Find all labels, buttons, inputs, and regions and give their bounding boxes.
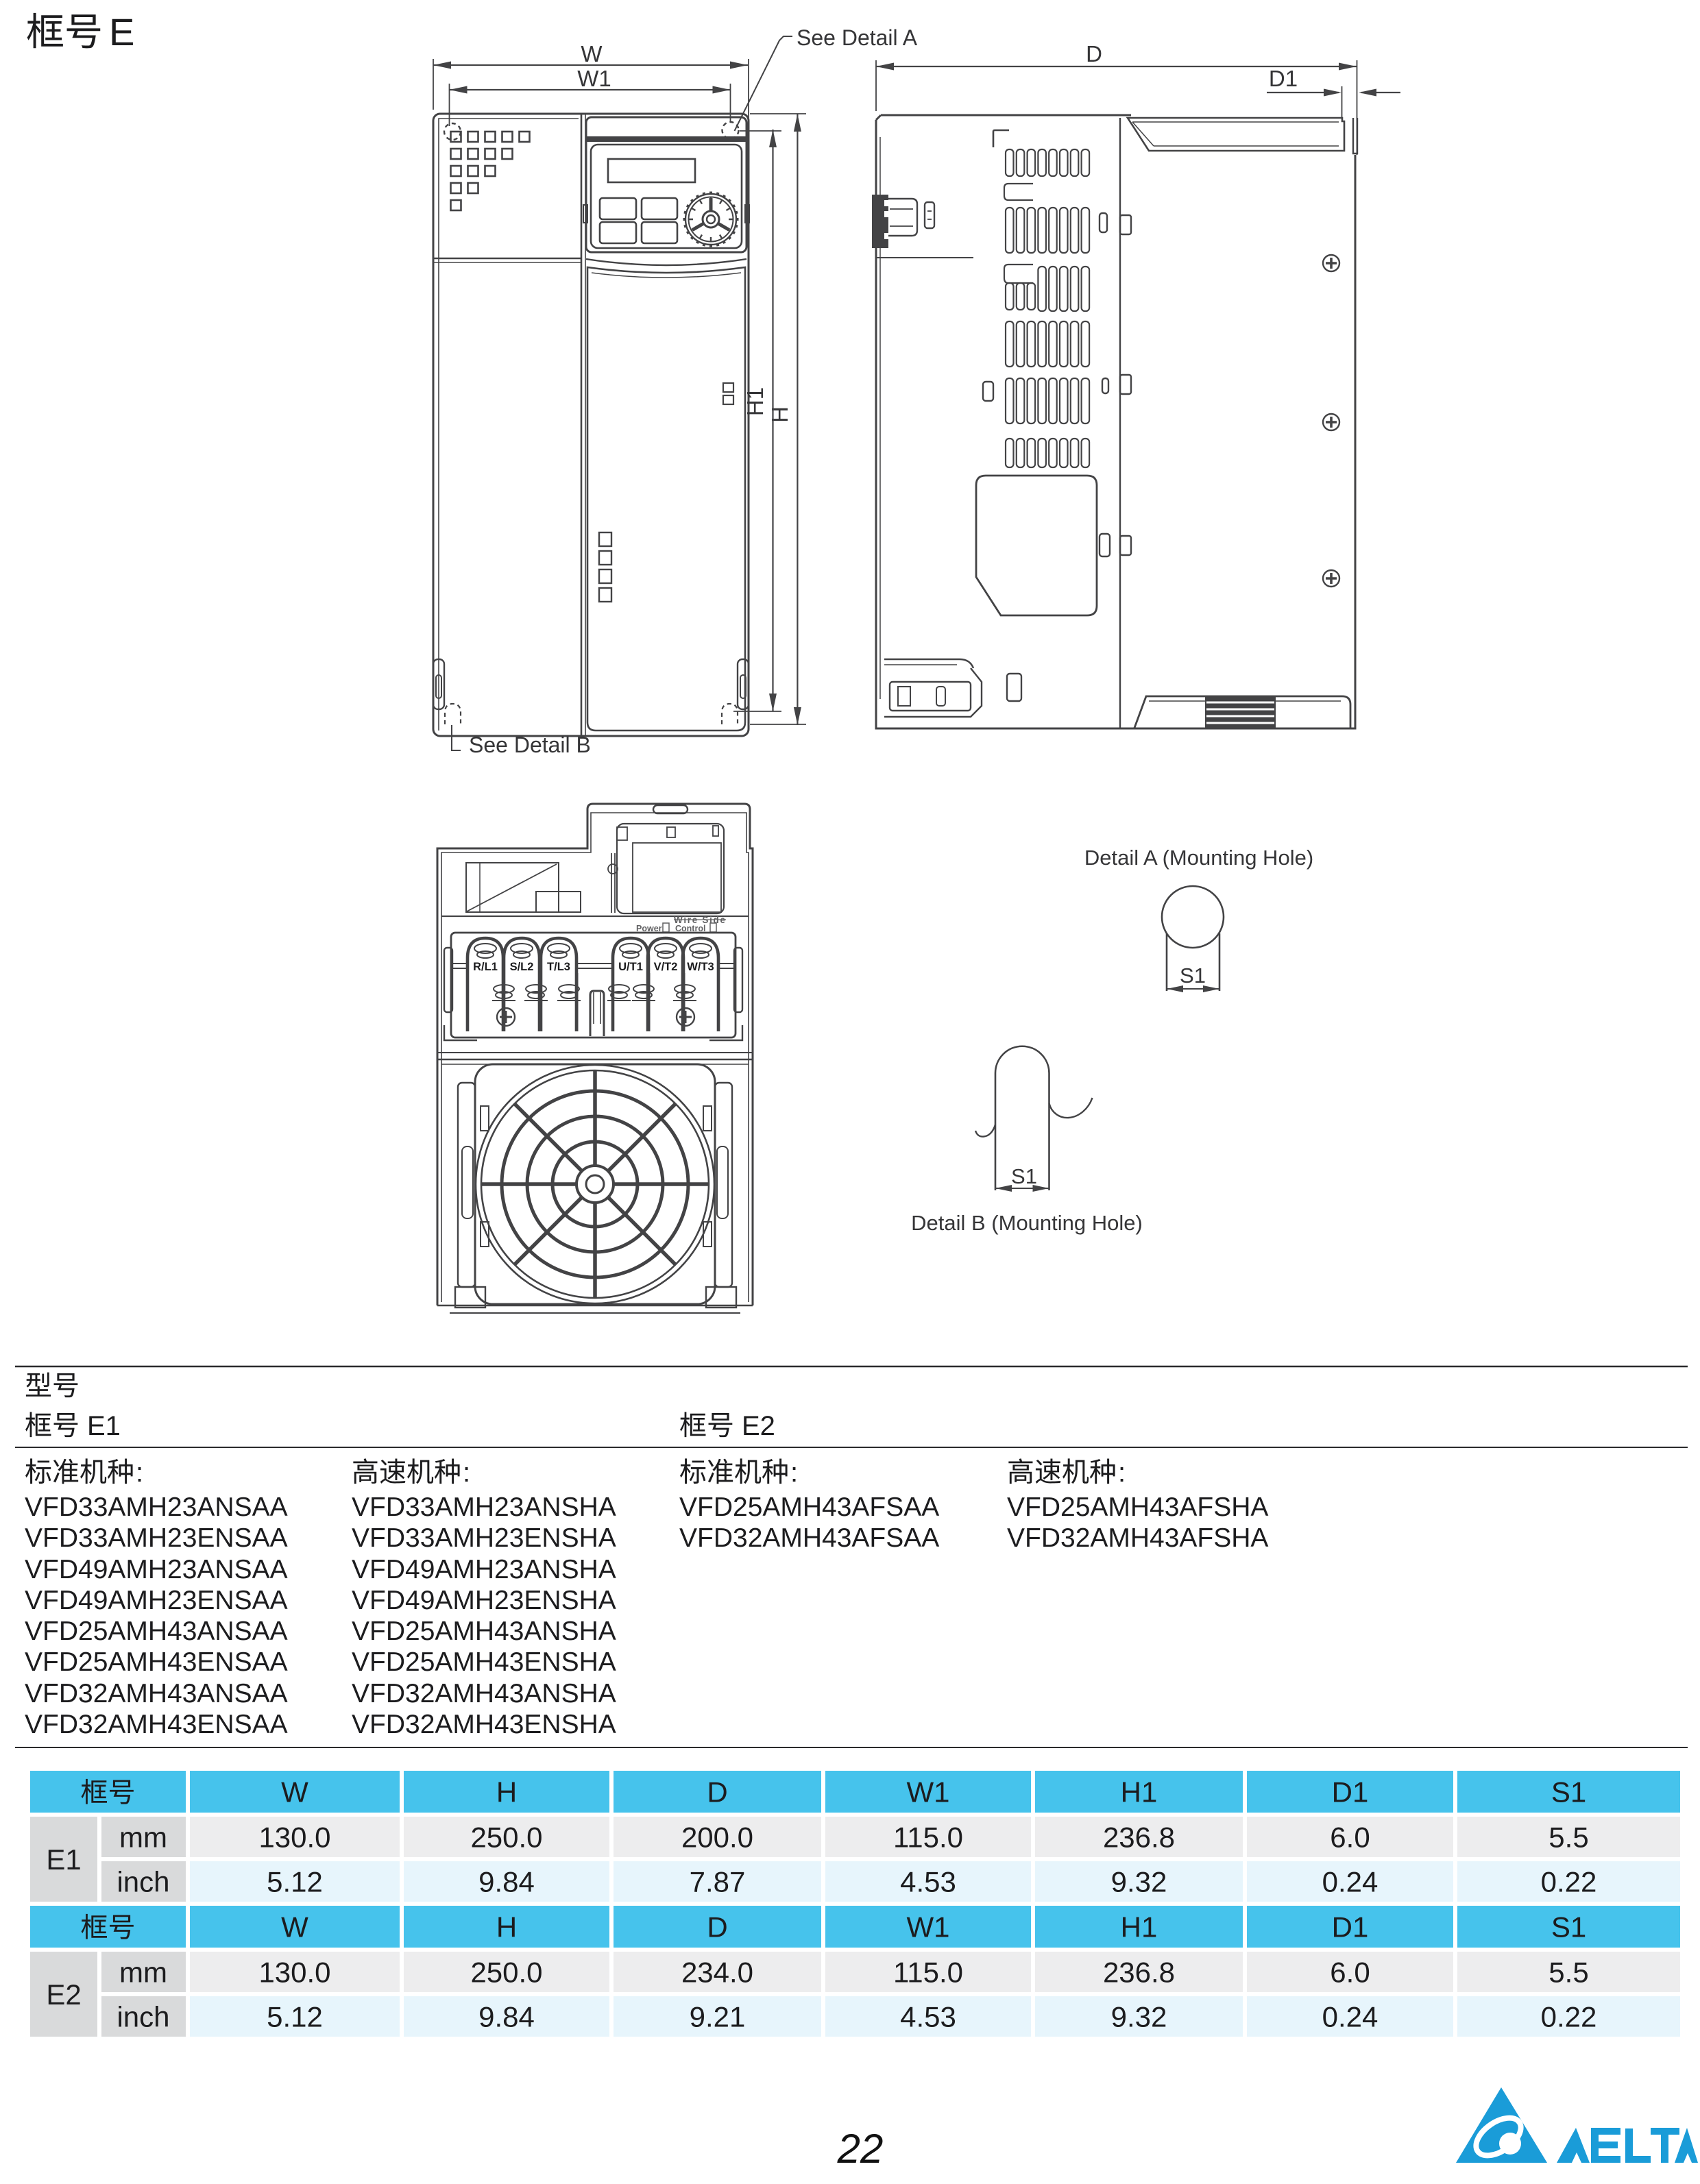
svg-text:VFD25AMH43ENSHA: VFD25AMH43ENSHA: [352, 1647, 616, 1677]
svg-text:H1: H1: [1121, 1911, 1158, 1943]
svg-text:VFD32AMH43AFSAA: VFD32AMH43AFSAA: [679, 1523, 939, 1553]
svg-text:D: D: [707, 1776, 727, 1808]
svg-text::: :: [463, 1458, 470, 1488]
svg-text:VFD25AMH43ANSHA: VFD25AMH43ANSHA: [352, 1617, 616, 1646]
svg-text:W1: W1: [907, 1911, 950, 1943]
svg-text:VFD32AMH43ENSAA: VFD32AMH43ENSAA: [25, 1710, 288, 1739]
svg-text:5.5: 5.5: [1549, 1956, 1588, 1989]
svg-text:VFD25AMH43AFSAA: VFD25AMH43AFSAA: [679, 1493, 939, 1522]
svg-text:250.0: 250.0: [470, 1821, 542, 1854]
svg-text:See Detail B: See Detail B: [469, 733, 591, 757]
svg-text:E2: E2: [46, 1978, 81, 2011]
svg-text:4.53: 4.53: [900, 2001, 956, 2033]
svg-text:E1: E1: [46, 1843, 81, 1876]
svg-text:H: H: [496, 1911, 517, 1943]
svg-text:D1: D1: [1332, 1911, 1369, 1943]
svg-text:R/L1: R/L1: [473, 961, 498, 973]
svg-text:7.87: 7.87: [690, 1866, 746, 1898]
svg-text:mm: mm: [119, 1821, 167, 1854]
svg-text:W/T3: W/T3: [687, 961, 714, 973]
svg-text:9.32: 9.32: [1111, 1866, 1167, 1898]
svg-text:W1: W1: [907, 1776, 950, 1808]
svg-text:See Detail A: See Detail A: [797, 25, 918, 50]
svg-text:Detail B (Mounting Hole): Detail B (Mounting Hole): [911, 1211, 1143, 1235]
svg-text:234.0: 234.0: [681, 1956, 753, 1989]
svg-text:0.22: 0.22: [1541, 1866, 1597, 1898]
svg-text:130.0: 130.0: [258, 1821, 330, 1854]
svg-text:VFD25AMH43AFSHA: VFD25AMH43AFSHA: [1007, 1493, 1268, 1522]
svg-text::: :: [790, 1458, 798, 1488]
svg-text:mm: mm: [119, 1956, 167, 1989]
svg-text:VFD49AMH23ANSHA: VFD49AMH23ANSHA: [352, 1555, 616, 1584]
svg-text:0.22: 0.22: [1541, 2001, 1597, 2033]
svg-text:H1: H1: [742, 387, 768, 416]
svg-text:D1: D1: [1269, 66, 1298, 91]
svg-text:V/T2: V/T2: [654, 961, 678, 973]
svg-text:D1: D1: [1332, 1776, 1369, 1808]
svg-text:inch: inch: [117, 2001, 169, 2033]
svg-text::: :: [1118, 1458, 1126, 1488]
svg-text:VFD25AMH43ANSAA: VFD25AMH43ANSAA: [25, 1617, 288, 1646]
svg-text:Detail A (Mounting Hole): Detail A (Mounting Hole): [1084, 846, 1313, 870]
svg-text:VFD33AMH23ENSHA: VFD33AMH23ENSHA: [352, 1523, 616, 1553]
svg-text:5.5: 5.5: [1549, 1821, 1588, 1854]
svg-text:9.84: 9.84: [478, 2001, 535, 2033]
svg-text:0.24: 0.24: [1322, 2001, 1379, 2033]
svg-text:236.8: 236.8: [1103, 1956, 1175, 1989]
svg-text:W: W: [281, 1776, 308, 1808]
svg-text:250.0: 250.0: [470, 1956, 542, 1989]
svg-text:VFD33AMH23ENSAA: VFD33AMH23ENSAA: [25, 1523, 288, 1553]
svg-text:VFD25AMH43ENSAA: VFD25AMH43ENSAA: [25, 1647, 288, 1677]
svg-text:9.84: 9.84: [478, 1866, 535, 1898]
svg-text:W: W: [581, 41, 603, 66]
svg-text:W1: W1: [577, 66, 611, 91]
svg-text:H: H: [767, 406, 792, 423]
svg-text:236.8: 236.8: [1103, 1821, 1175, 1854]
svg-text:9.21: 9.21: [690, 2001, 746, 2033]
svg-text:S1: S1: [1551, 1776, 1586, 1808]
svg-text:6.0: 6.0: [1330, 1821, 1370, 1854]
svg-text:5.12: 5.12: [267, 1866, 323, 1898]
svg-text:W: W: [281, 1911, 308, 1943]
svg-text:VFD49AMH23ENSHA: VFD49AMH23ENSHA: [352, 1586, 616, 1615]
svg-text:115.0: 115.0: [893, 1821, 963, 1854]
svg-text:E: E: [109, 10, 134, 53]
svg-text:D: D: [1086, 41, 1102, 66]
svg-text:S/L2: S/L2: [510, 961, 534, 973]
svg-text:VFD32AMH43ANSHA: VFD32AMH43ANSHA: [352, 1679, 616, 1708]
svg-text:130.0: 130.0: [258, 1956, 330, 1989]
svg-text:VFD32AMH43ANSAA: VFD32AMH43ANSAA: [25, 1679, 288, 1708]
svg-text:S1: S1: [1551, 1911, 1586, 1943]
svg-text:S1: S1: [1011, 1164, 1037, 1188]
svg-text::: :: [136, 1458, 143, 1488]
svg-text:H: H: [496, 1776, 517, 1808]
svg-text:6.0: 6.0: [1330, 1956, 1370, 1989]
svg-text:5.12: 5.12: [267, 2001, 323, 2033]
svg-text:VFD33AMH23ANSAA: VFD33AMH23ANSAA: [25, 1493, 288, 1522]
svg-text:VFD33AMH23ANSHA: VFD33AMH23ANSHA: [352, 1493, 616, 1522]
svg-text:U/T1: U/T1: [618, 961, 643, 973]
svg-text:E2: E2: [742, 1411, 775, 1441]
svg-text:D: D: [707, 1911, 727, 1943]
svg-text:VFD49AMH23ANSAA: VFD49AMH23ANSAA: [25, 1555, 288, 1584]
svg-text:VFD32AMH43ENSHA: VFD32AMH43ENSHA: [352, 1710, 616, 1739]
svg-text:E1: E1: [87, 1411, 121, 1441]
svg-text:S1: S1: [1180, 964, 1206, 987]
svg-text:inch: inch: [117, 1866, 169, 1898]
svg-text:4.53: 4.53: [900, 1866, 956, 1898]
svg-text:VFD32AMH43AFSHA: VFD32AMH43AFSHA: [1007, 1523, 1268, 1553]
svg-text:H1: H1: [1121, 1776, 1158, 1808]
svg-text:22: 22: [837, 2126, 884, 2172]
svg-text:0.24: 0.24: [1322, 1866, 1379, 1898]
svg-text:T/L3: T/L3: [547, 961, 570, 973]
svg-text:200.0: 200.0: [681, 1821, 753, 1854]
svg-text:VFD49AMH23ENSAA: VFD49AMH23ENSAA: [25, 1586, 288, 1615]
svg-text:9.32: 9.32: [1111, 2001, 1167, 2033]
svg-text:115.0: 115.0: [893, 1956, 963, 1989]
